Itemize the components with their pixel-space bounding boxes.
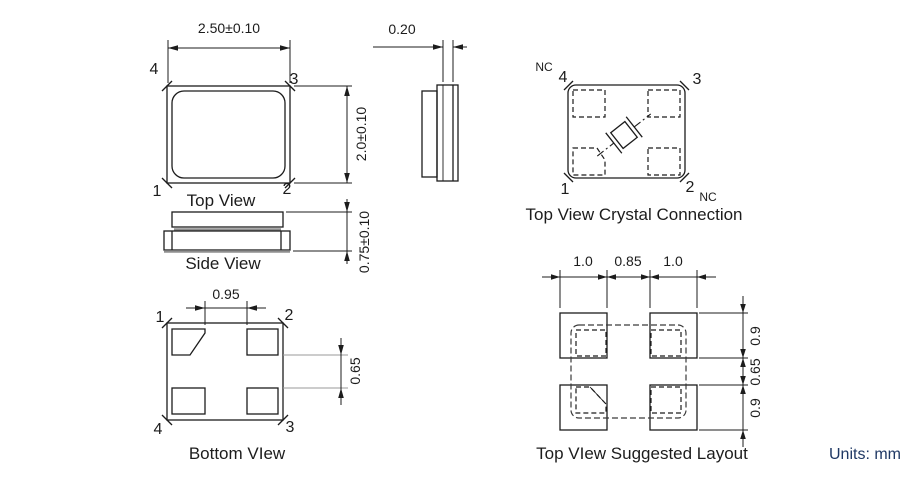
crystal-symbol xyxy=(589,104,659,166)
connection-pin-2: 2 xyxy=(686,179,695,196)
bottom-view-corner-marks xyxy=(162,318,288,425)
top-view-width-dimension-lines xyxy=(168,40,290,83)
top-view-pin-3: 3 xyxy=(290,71,299,88)
side-view: 0.75±0.10 Side View xyxy=(164,199,372,273)
top-view-height-dimension: 2.0±0.10 xyxy=(353,107,369,162)
bottom-view-pad-2 xyxy=(247,329,278,355)
suggested-layout-view: 1.0 0.85 1.0 xyxy=(536,253,763,463)
connection-pad-3 xyxy=(648,90,680,117)
top-view-pin-1: 1 xyxy=(153,183,162,200)
layout-land-pad-top-left xyxy=(560,313,607,358)
end-view-dimension-lines xyxy=(373,40,467,82)
layout-dim-center: 0.85 xyxy=(614,253,641,269)
top-view-height-dimension-lines xyxy=(294,86,352,183)
end-view-base xyxy=(422,91,437,177)
layout-package-pad-3-dashed xyxy=(651,330,681,356)
bottom-view-package-outline xyxy=(167,323,283,420)
crystal-package-drawing: 2.50±0.10 4 3 1 2 2.0±0.10 Top View xyxy=(0,0,909,481)
layout-package-pad-2-dashed xyxy=(651,387,681,413)
bottom-view-vertical-dimension: 0.65 xyxy=(347,357,363,384)
bottom-view-pad-gap-dimension: 0.95 xyxy=(212,286,239,302)
bottom-view-pin-3: 3 xyxy=(286,419,295,436)
layout-vertical-dimension-lines xyxy=(699,296,748,447)
side-view-height-dimension-lines xyxy=(286,199,352,264)
top-view-pin-4: 4 xyxy=(150,61,159,78)
bottom-view-pin-4: 4 xyxy=(154,421,163,438)
layout-horizontal-dimension-lines xyxy=(542,270,716,308)
bottom-view-pad-4 xyxy=(172,388,205,414)
end-view: 0.20 xyxy=(373,21,467,181)
connection-pin-1: 1 xyxy=(561,181,570,198)
connection-pad-2 xyxy=(648,148,680,175)
connection-pin-4: 4 xyxy=(559,69,568,86)
layout-package-outline-dashed xyxy=(571,325,686,418)
connection-caption: Top View Crystal Connection xyxy=(525,205,742,224)
side-view-height-dimension: 0.75±0.10 xyxy=(356,211,372,273)
connection-nc-bottom-right: NC xyxy=(699,190,717,204)
end-view-lid-dimension: 0.20 xyxy=(388,21,415,37)
bottom-view-pad-1 xyxy=(172,329,205,355)
connection-pin-3: 3 xyxy=(693,71,702,88)
units-note: Units: mm xyxy=(829,446,901,463)
connection-pad-4 xyxy=(573,90,605,117)
bottom-view-pad-3 xyxy=(247,388,278,414)
layout-dim-left: 1.0 xyxy=(573,253,593,269)
top-view-package-outline xyxy=(167,86,290,183)
top-view: 2.50±0.10 4 3 1 2 2.0±0.10 Top View xyxy=(150,20,369,210)
crystal-lead-to-pin-1 xyxy=(597,143,614,156)
bottom-view-gap-dimension-lines xyxy=(186,301,266,325)
bottom-view-pin-1: 1 xyxy=(156,309,165,326)
crystal-lead-to-pin-3 xyxy=(634,114,651,127)
top-view-lid-outline xyxy=(172,91,285,178)
side-view-lid xyxy=(172,212,283,227)
side-view-base xyxy=(164,231,290,250)
layout-land-pad-top-right xyxy=(650,313,697,358)
bottom-view-pin-2: 2 xyxy=(285,307,294,324)
connection-nc-top-left: NC xyxy=(535,60,553,74)
layout-caption: Top VIew Suggested Layout xyxy=(536,444,748,463)
connection-package-outline xyxy=(568,85,685,178)
crystal-connection-view: NC 4 3 1 2 NC Top View Crystal Connectio… xyxy=(525,60,742,224)
top-view-corner-marks xyxy=(162,81,295,188)
layout-land-pad-bottom-right xyxy=(650,385,697,430)
layout-land-pad-bottom-left xyxy=(560,385,607,430)
end-view-body xyxy=(437,85,458,181)
top-view-caption: Top View xyxy=(187,191,256,210)
top-view-width-dimension: 2.50±0.10 xyxy=(198,20,260,36)
bottom-view-vertical-dimension-lines xyxy=(283,338,348,405)
top-view-pin-2: 2 xyxy=(283,181,292,198)
layout-package-pad-4-dashed xyxy=(576,330,606,356)
layout-package-pad-1-dashed xyxy=(576,387,606,413)
side-view-caption: Side View xyxy=(185,254,261,273)
layout-dim-right: 1.0 xyxy=(663,253,683,269)
layout-pad-1-chamfer-line xyxy=(590,387,606,404)
technical-drawing-page: 2.50±0.10 4 3 1 2 2.0±0.10 Top View xyxy=(0,0,909,481)
connection-pad-1 xyxy=(573,148,605,175)
connection-corner-marks xyxy=(564,81,689,182)
layout-vdim-middle: 0.65 xyxy=(747,358,763,385)
layout-vdim-top: 0.9 xyxy=(747,326,763,346)
bottom-view: 0.95 0.65 1 2 4 3 Botto xyxy=(154,286,363,463)
bottom-view-caption: Bottom VIew xyxy=(189,444,286,463)
layout-vdim-bottom: 0.9 xyxy=(747,398,763,418)
